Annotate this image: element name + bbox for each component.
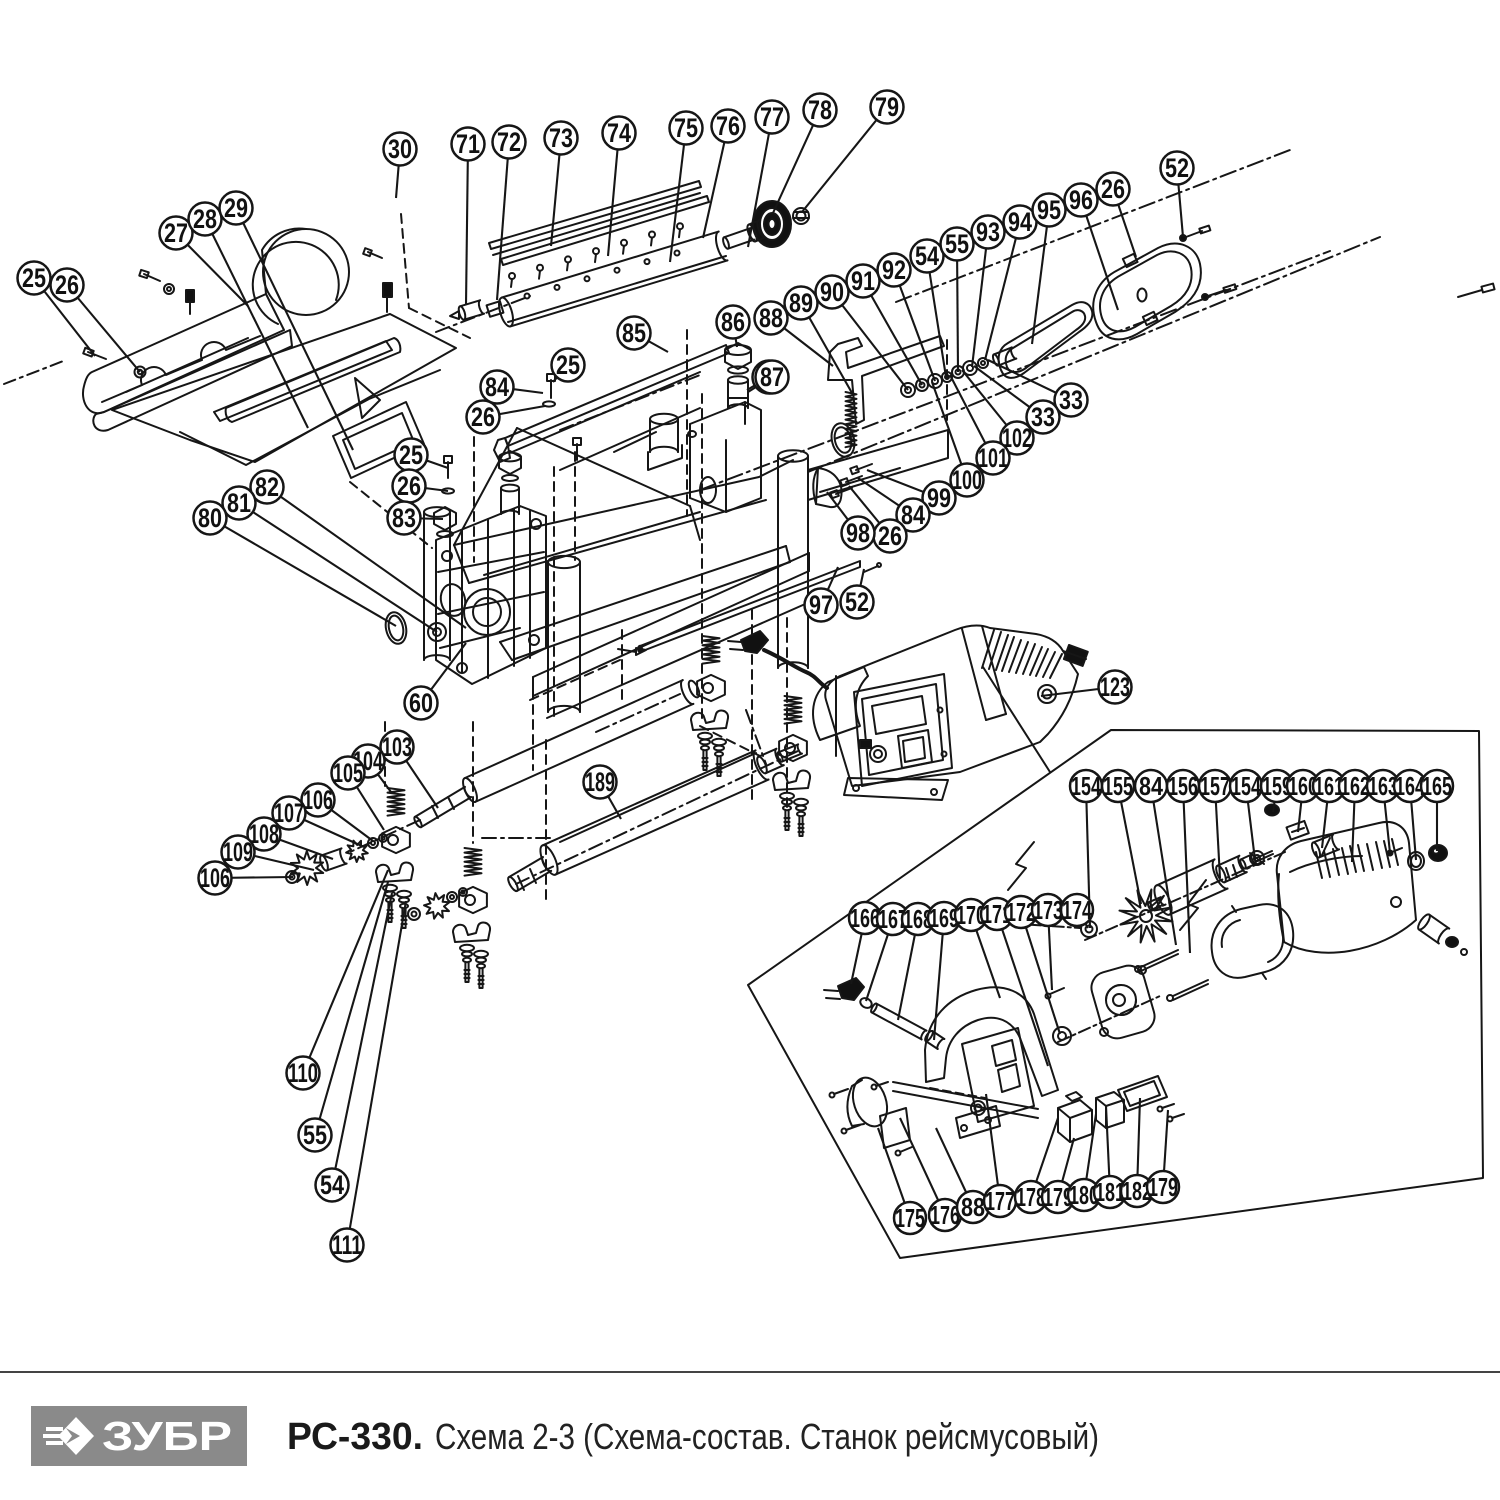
svg-text:89: 89: [789, 288, 813, 318]
svg-text:33: 33: [1059, 385, 1083, 415]
svg-text:26: 26: [471, 402, 495, 432]
svg-text:82: 82: [255, 472, 279, 502]
svg-text:110: 110: [288, 1058, 318, 1088]
svg-text:84: 84: [1139, 771, 1163, 801]
svg-text:94: 94: [1008, 207, 1032, 237]
svg-text:91: 91: [851, 266, 875, 296]
svg-text:179: 179: [1148, 1172, 1178, 1202]
svg-text:175: 175: [895, 1203, 925, 1233]
svg-text:154: 154: [1071, 771, 1101, 801]
svg-text:111: 111: [332, 1230, 362, 1260]
svg-text:165: 165: [1422, 771, 1452, 801]
svg-text:177: 177: [985, 1186, 1015, 1216]
svg-text:25: 25: [399, 440, 423, 470]
svg-text:93: 93: [976, 217, 1000, 247]
svg-text:29: 29: [224, 193, 248, 223]
svg-text:173: 173: [1033, 895, 1063, 925]
svg-text:52: 52: [1165, 153, 1189, 183]
svg-text:77: 77: [760, 102, 784, 132]
svg-text:26: 26: [878, 521, 902, 551]
svg-text:166: 166: [850, 903, 880, 933]
svg-text:95: 95: [1037, 195, 1061, 225]
svg-text:155: 155: [1103, 771, 1133, 801]
svg-text:55: 55: [945, 229, 969, 259]
svg-text:176: 176: [930, 1200, 960, 1230]
svg-text:30: 30: [388, 134, 412, 164]
svg-text:78: 78: [808, 95, 832, 125]
svg-text:81: 81: [227, 488, 251, 518]
svg-text:156: 156: [1168, 771, 1198, 801]
svg-text:26: 26: [1101, 174, 1125, 204]
svg-text:106: 106: [200, 863, 230, 893]
svg-text:154: 154: [1231, 771, 1261, 801]
svg-text:103: 103: [382, 732, 412, 762]
svg-text:76: 76: [716, 111, 740, 141]
svg-text:28: 28: [193, 204, 217, 234]
svg-text:71: 71: [456, 129, 480, 159]
svg-text:99: 99: [927, 483, 951, 513]
svg-text:96: 96: [1069, 185, 1093, 215]
svg-text:101: 101: [978, 443, 1008, 473]
svg-text:РС-330.Схема 2-3 (Схема-состав: РС-330.Схема 2-3 (Схема-состав. Станок р…: [287, 1416, 1099, 1458]
svg-text:98: 98: [846, 518, 870, 548]
svg-text:85: 85: [622, 318, 646, 348]
svg-text:75: 75: [674, 113, 698, 143]
svg-text:123: 123: [1100, 672, 1130, 702]
svg-text:92: 92: [882, 255, 906, 285]
svg-text:80: 80: [198, 503, 222, 533]
svg-text:25: 25: [22, 263, 46, 293]
svg-text:157: 157: [1200, 771, 1230, 801]
svg-text:174: 174: [1062, 895, 1092, 925]
svg-text:33: 33: [1031, 402, 1055, 432]
svg-text:87: 87: [760, 362, 784, 392]
svg-text:26: 26: [397, 471, 421, 501]
svg-text:27: 27: [164, 218, 188, 248]
svg-text:54: 54: [915, 241, 939, 271]
svg-text:79: 79: [875, 92, 899, 122]
svg-text:74: 74: [607, 118, 631, 148]
svg-text:72: 72: [497, 127, 521, 157]
svg-text:88: 88: [961, 1192, 985, 1222]
svg-text:84: 84: [901, 500, 925, 530]
svg-text:162: 162: [1340, 771, 1370, 801]
svg-text:84: 84: [485, 372, 509, 402]
svg-text:55: 55: [303, 1120, 327, 1150]
svg-text:25: 25: [556, 350, 580, 380]
svg-text:88: 88: [759, 303, 783, 333]
svg-text:106: 106: [303, 785, 333, 815]
svg-text:ЗУБР: ЗУБР: [102, 1413, 232, 1459]
svg-text:26: 26: [55, 270, 79, 300]
svg-text:189: 189: [585, 767, 615, 797]
svg-text:90: 90: [820, 277, 844, 307]
svg-text:52: 52: [845, 587, 869, 617]
svg-text:83: 83: [392, 503, 416, 533]
svg-text:60: 60: [409, 688, 433, 718]
svg-text:73: 73: [549, 123, 573, 153]
svg-text:100: 100: [952, 465, 982, 495]
svg-text:97: 97: [809, 590, 833, 620]
svg-text:54: 54: [320, 1170, 344, 1200]
svg-text:105: 105: [333, 758, 363, 788]
svg-text:86: 86: [721, 307, 745, 337]
